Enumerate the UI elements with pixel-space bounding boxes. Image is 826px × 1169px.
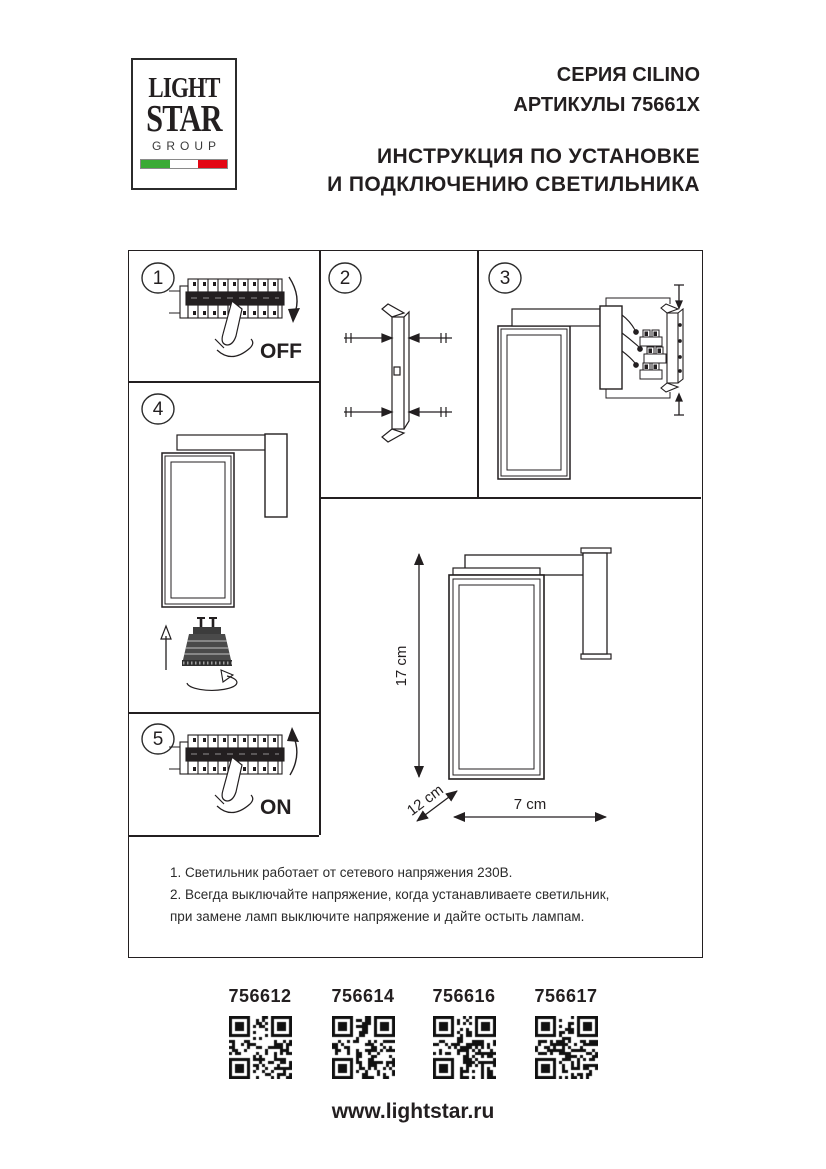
- wall-bracket-icon: [661, 304, 683, 392]
- step1-number-badge: 1: [142, 263, 174, 293]
- svg-text:3: 3: [500, 268, 511, 289]
- step1-panel-breaker-off: 1 OFF: [129, 251, 319, 381]
- width-dimension: 7 cm: [454, 796, 606, 817]
- qr-code: [229, 1016, 292, 1079]
- flag-white: [170, 160, 199, 168]
- step3-number-badge: 3: [489, 263, 521, 293]
- article-number: 756617: [518, 986, 614, 1007]
- article-number: 756612: [212, 986, 308, 1007]
- logo-word-group: GROUP: [133, 139, 235, 153]
- circuit-breaker-icon: [169, 279, 284, 318]
- note-line-3: при замене ламп выключите напряжение и д…: [170, 906, 610, 928]
- step2-panel-bracket: 2: [320, 251, 477, 497]
- flag-red: [198, 160, 227, 168]
- lightstar-logo: LIGHT STAR GROUP: [131, 58, 237, 190]
- rotate-arrow-icon: [187, 670, 237, 690]
- instruction-title-line1: ИНСТРУКЦИЯ ПО УСТАНОВКЕ: [327, 143, 700, 171]
- qr-code: [535, 1016, 598, 1079]
- series-title: СЕРИЯ CILINO: [513, 60, 700, 90]
- logo-word-star: STAR: [143, 102, 225, 136]
- step5-panel-breaker-on: 5 ON: [129, 713, 319, 835]
- step3-panel-wiring: 3: [478, 251, 701, 497]
- grid-hline-p5: [129, 835, 319, 837]
- safety-notes: 1. Светильник работает от сетевого напря…: [170, 862, 610, 928]
- qr-code: [433, 1016, 496, 1079]
- arrow-down-icon: [288, 277, 300, 323]
- step4-panel-lamp-insert: 4: [129, 382, 319, 712]
- product-756616: 756616: [416, 986, 512, 1084]
- instruction-sheet: LIGHT STAR GROUP СЕРИЯ CILINO АРТИКУЛЫ 7…: [0, 0, 826, 1169]
- instruction-title-line2: И ПОДКЛЮЧЕНИЮ СВЕТИЛЬНИКА: [327, 171, 700, 199]
- product-756612: 756612: [212, 986, 308, 1084]
- mounting-bracket-icon: [382, 304, 409, 442]
- pointing-hand-icon: [215, 301, 253, 357]
- article-number: 756616: [416, 986, 512, 1007]
- depth-dimension-label: 12 cm: [404, 781, 447, 819]
- connection-wires-icon: [622, 315, 642, 367]
- depth-dimension: 12 cm: [404, 781, 457, 821]
- svg-text:2: 2: [340, 268, 351, 289]
- step4-number-badge: 4: [142, 394, 174, 424]
- off-label: OFF: [260, 340, 302, 363]
- header-instruction-block: ИНСТРУКЦИЯ ПО УСТАНОВКЕ И ПОДКЛЮЧЕНИЮ СВ…: [327, 143, 700, 199]
- product-756617: 756617: [518, 986, 614, 1084]
- circuit-breaker-icon: [169, 735, 284, 774]
- product-756614: 756614: [315, 986, 411, 1084]
- qr-code: [332, 1016, 395, 1079]
- step5-number-badge: 5: [142, 724, 174, 754]
- lamp-body-icon: [498, 306, 622, 479]
- header-series-block: СЕРИЯ CILINO АРТИКУЛЫ 75661X: [513, 60, 700, 120]
- lamp-body-icon: [162, 434, 287, 607]
- on-label: ON: [260, 796, 292, 819]
- height-dimension: 17 cm: [393, 554, 419, 777]
- italian-flag-icon: [140, 159, 228, 169]
- step2-number-badge: 2: [329, 263, 361, 293]
- note-line-1: 1. Светильник работает от сетевого напря…: [170, 862, 610, 884]
- wall-lamp-side-view: [449, 548, 611, 779]
- instruction-panels: 1 OFF: [128, 250, 703, 958]
- svg-text:1: 1: [153, 268, 164, 289]
- flag-green: [141, 160, 170, 168]
- note-line-2: 2. Всегда выключайте напряжение, когда у…: [170, 884, 610, 906]
- website-url: www.lightstar.ru: [0, 1100, 826, 1124]
- article-number: 756614: [315, 986, 411, 1007]
- arrow-up-icon: [287, 727, 299, 775]
- articles-title: АРТИКУЛЫ 75661X: [513, 90, 700, 120]
- gu10-bulb-icon: [182, 618, 232, 666]
- arrow-up-icon: [161, 626, 171, 670]
- svg-text:5: 5: [153, 729, 164, 750]
- terminal-blocks-icon: [640, 330, 666, 379]
- pointing-hand-icon: [215, 757, 253, 813]
- height-dimension-label: 17 cm: [393, 646, 410, 687]
- width-dimension-label: 7 cm: [514, 796, 547, 813]
- svg-text:4: 4: [153, 399, 164, 420]
